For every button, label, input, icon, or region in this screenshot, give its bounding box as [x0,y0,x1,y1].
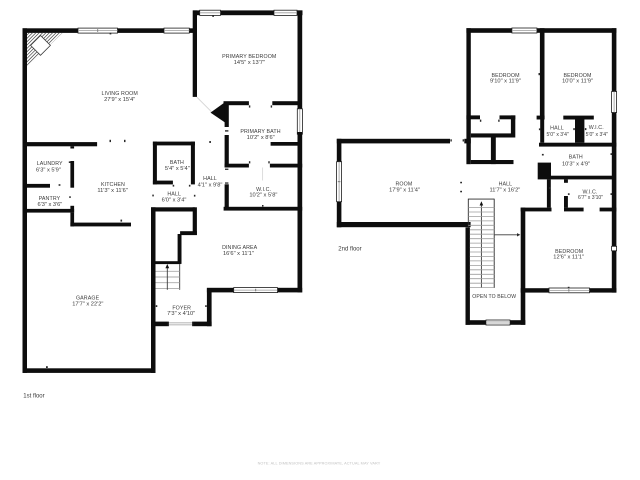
svg-text:9'10" x 11'9": 9'10" x 11'9" [490,79,521,85]
svg-text:DINING AREA: DINING AREA [222,245,258,251]
svg-text:14'5" x 13'7": 14'5" x 13'7" [234,60,265,66]
svg-text:2nd floor: 2nd floor [338,246,361,252]
svg-text:LIVING ROOM: LIVING ROOM [101,91,137,97]
svg-text:10'2" x 8'6": 10'2" x 8'6" [247,135,275,141]
svg-text:10'3" x 4'9": 10'3" x 4'9" [562,162,590,168]
svg-text:12'6" x 11'1": 12'6" x 11'1" [553,255,584,261]
svg-text:11'3" x 11'6": 11'3" x 11'6" [97,188,127,194]
svg-text:4'1" x 9'8": 4'1" x 9'8" [198,182,223,188]
svg-text:5'4" x 5'4": 5'4" x 5'4" [165,166,190,172]
svg-text:HALL: HALL [203,176,217,182]
svg-text:10'0" x 11'9": 10'0" x 11'9" [562,79,593,85]
svg-text:17'9" x 11'4": 17'9" x 11'4" [389,187,420,193]
svg-text:17'7" x 22'2": 17'7" x 22'2" [72,302,103,308]
svg-text:GARAGE: GARAGE [76,296,100,302]
svg-text:27'9" x 15'4": 27'9" x 15'4" [104,97,135,103]
svg-text:1st floor: 1st floor [23,393,44,399]
svg-text:LAUNDRY: LAUNDRY [37,161,63,167]
svg-text:HALL: HALL [499,181,513,187]
svg-text:W.I.C.: W.I.C. [589,125,604,131]
svg-text:OPEN TO BELOW: OPEN TO BELOW [472,294,516,300]
svg-text:10'2" x 5'8": 10'2" x 5'8" [249,193,277,199]
svg-text:BATH: BATH [569,154,583,160]
svg-text:HALL: HALL [550,125,564,131]
svg-text:16'6" x 11'1": 16'6" x 11'1" [223,251,254,257]
svg-text:7'3" x 4'10": 7'3" x 4'10" [167,311,195,317]
svg-text:6'0" x 3'4": 6'0" x 3'4" [162,197,187,203]
svg-text:NOTE: ALL DIMENSIONS ARE APPRO: NOTE: ALL DIMENSIONS ARE APPROXIMATE, AC… [258,462,381,466]
svg-text:5'0" x 3'4": 5'0" x 3'4" [586,132,608,138]
svg-text:6'7" x 3'10": 6'7" x 3'10" [578,195,603,201]
svg-text:11'7" x 16'2": 11'7" x 16'2" [490,188,521,194]
svg-text:6'3" x 5'9": 6'3" x 5'9" [36,168,61,174]
svg-text:6'3" x 3'6": 6'3" x 3'6" [37,202,62,208]
svg-text:5'0" x 3'4": 5'0" x 3'4" [546,132,568,138]
